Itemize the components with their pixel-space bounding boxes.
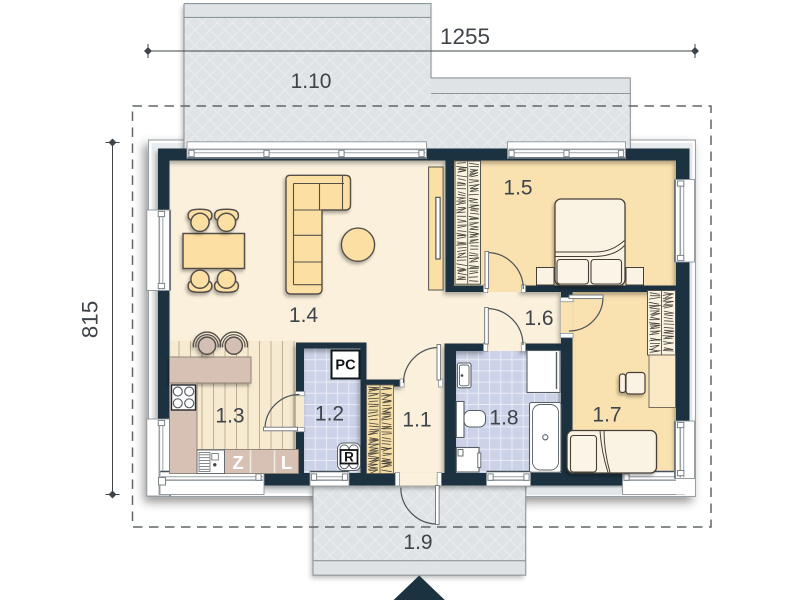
- svg-text:1.6: 1.6: [524, 307, 553, 330]
- svg-text:Z: Z: [232, 452, 243, 473]
- svg-text:L: L: [281, 452, 292, 473]
- svg-text:1.9: 1.9: [403, 531, 432, 554]
- svg-text:1.10: 1.10: [291, 70, 332, 93]
- svg-text:1.7: 1.7: [592, 404, 621, 427]
- svg-text:1.5: 1.5: [503, 177, 532, 200]
- svg-text:815: 815: [78, 301, 103, 339]
- svg-text:PC: PC: [335, 358, 356, 374]
- svg-text:1.3: 1.3: [215, 405, 244, 428]
- svg-text:1.4: 1.4: [289, 304, 319, 327]
- svg-text:1.1: 1.1: [402, 409, 431, 432]
- svg-text:1255: 1255: [440, 24, 490, 49]
- svg-text:R: R: [344, 450, 354, 465]
- svg-text:1.8: 1.8: [489, 407, 518, 430]
- svg-text:1.2: 1.2: [315, 403, 344, 426]
